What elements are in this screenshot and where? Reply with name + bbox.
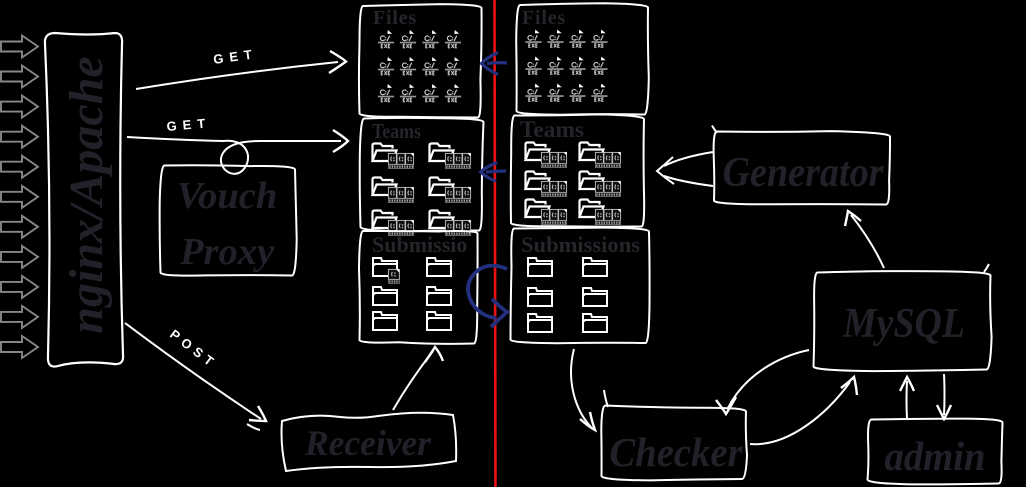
svg-text:Submissio: Submissio xyxy=(372,232,467,257)
svg-text:Generator: Generator xyxy=(723,150,885,196)
svg-text:Files: Files xyxy=(373,7,417,29)
svg-text:Receiver: Receiver xyxy=(304,423,432,463)
svg-text:Submissions: Submissions xyxy=(521,232,640,257)
svg-text:Vouch: Vouch xyxy=(177,175,278,217)
svg-text:Teams: Teams xyxy=(520,117,584,142)
svg-text:Proxy: Proxy xyxy=(179,231,275,273)
svg-text:admin: admin xyxy=(885,433,986,479)
svg-text:Files: Files xyxy=(522,7,566,29)
svg-text:Teams: Teams xyxy=(372,119,421,143)
svg-text:MySQL: MySQL xyxy=(842,301,965,347)
svg-text:Checker: Checker xyxy=(610,429,744,475)
svg-text:nginx/Apache: nginx/Apache xyxy=(60,56,113,333)
